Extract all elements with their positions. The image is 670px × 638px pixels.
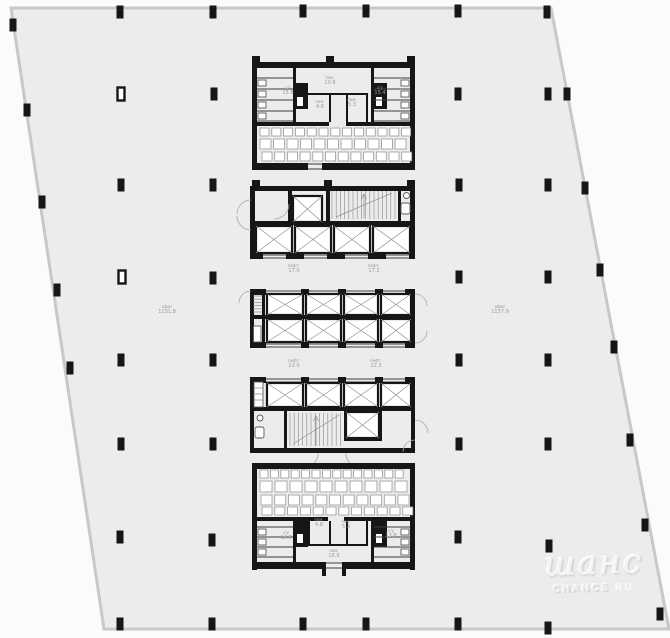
elevator-shaft [344,294,378,315]
column-marker [118,438,125,451]
column-marker [67,362,74,375]
column-marker [118,354,125,367]
column-marker [627,434,634,447]
column-marker [545,88,552,101]
column-marker [209,534,216,547]
furniture-item [402,128,411,136]
furniture-item [274,139,285,149]
room-area-label: лифт.17.0 [288,263,300,274]
duct-shaft [254,382,263,407]
room-area-label: пом.10.8 [324,75,335,86]
furniture-item [313,507,323,515]
furniture-item [390,128,399,136]
column-marker [119,271,126,284]
elevator-shaft [381,319,411,342]
furniture-item [380,481,392,492]
furniture-item [275,507,285,515]
column-marker [545,354,552,367]
furniture-item [328,139,339,149]
furniture-item [364,507,374,515]
column-marker [456,438,463,451]
furniture-item [287,152,297,161]
elevator-shaft [346,412,379,438]
watermark-brand: шанс [535,546,652,580]
furniture-item [384,495,395,505]
furniture-item [395,481,407,492]
column-marker [545,622,552,635]
elevator-shaft [306,319,341,342]
furniture-item [312,470,320,478]
furniture-item [307,128,316,136]
column-marker [39,196,46,209]
elevator-shaft [267,294,303,315]
furniture-item [281,470,289,478]
furniture-item [343,470,351,478]
elevator-shaft [344,319,378,342]
furniture-item [320,481,332,492]
furniture-item [357,495,368,505]
watermark-tld-label: RU [613,582,637,594]
column-marker [118,179,125,192]
furniture-item [354,470,362,478]
furniture-item [364,152,374,161]
column-marker [456,271,463,284]
furniture-item [330,495,341,505]
column-marker [545,438,552,451]
furniture-item [339,507,349,515]
furniture-item [300,152,310,161]
column-marker [455,5,462,18]
furniture-item [295,128,304,136]
elevator-shaft [381,383,411,407]
column-marker [117,618,124,631]
furniture-item [398,495,409,505]
furniture-item [354,128,363,136]
column-marker [455,618,462,631]
column-marker [657,608,664,621]
column-marker [455,531,462,544]
furniture-item [313,152,323,161]
room-area-label: лифт.22.3 [370,358,382,369]
furniture-item [302,495,313,505]
column-marker [10,19,17,32]
elevator-shaft [306,294,341,315]
column-marker [209,618,216,631]
furniture-item [382,139,393,149]
elevator-shaft [381,294,411,315]
furniture-item [350,481,362,492]
furniture-item [355,139,366,149]
elevator-shaft [373,226,410,253]
furniture-item [275,152,285,161]
furniture-item [260,139,271,149]
watermark-site-label: CHANCE [553,582,611,595]
column-marker [545,179,552,192]
furniture-item [343,495,354,505]
room-area-label: пом.5.3 [341,519,350,530]
furniture-item [314,139,325,149]
elevator-shaft [267,319,303,342]
furniture-item [272,128,281,136]
furniture-item [403,507,413,515]
furniture-item [326,152,336,161]
furniture-item [260,470,268,478]
column-marker [597,264,604,277]
room-area-label: лифт.22.0 [288,358,300,369]
furniture-item [402,152,412,161]
furniture-item [395,139,406,149]
elevator-shaft [295,226,331,253]
column-marker [363,5,370,18]
room-area-label: пом.16.9 [328,548,339,559]
furniture-item [300,507,310,515]
furniture-item [290,481,302,492]
column-marker [210,354,217,367]
furniture-item [385,470,393,478]
furniture-item [262,152,272,161]
column-marker [363,618,370,631]
column-marker [54,284,61,297]
furniture-item [262,507,272,515]
furniture-item [376,152,386,161]
furniture-item [284,128,293,136]
furniture-item [352,507,362,515]
column-marker [117,531,124,544]
furniture-item [288,495,299,505]
floor-plan-drawing: пом.10.8с/у15.8с/у15.4пом.4.8пом.5.3лифт… [0,0,670,638]
watermark: шанс CHANCERU [535,546,653,598]
furniture-item [301,139,312,149]
furniture-item [335,481,347,492]
room-area-label: пом.5.3 [347,97,356,108]
furniture-item [322,470,330,478]
column-marker [611,341,618,354]
elevator-shaft [256,226,292,253]
column-marker [210,6,217,19]
column-marker [545,271,552,284]
furniture-item [341,139,352,149]
furniture-item [288,507,298,515]
elevator-shaft [267,383,303,407]
column-marker [300,5,307,18]
furniture-item [378,128,387,136]
furniture-item [395,470,403,478]
elevator-shaft [334,226,370,253]
furniture-item [365,481,377,492]
furniture-item [260,481,272,492]
furniture-item [275,495,286,505]
room-area-label: пом.4.8 [315,99,324,110]
furniture-item [389,152,399,161]
furniture-item [316,495,327,505]
column-marker [210,272,217,285]
furniture-item [371,495,382,505]
furniture-item [291,470,299,478]
furniture-item [275,481,287,492]
furniture-item [338,152,348,161]
column-marker [117,6,124,19]
furniture-item [364,470,372,478]
furniture-item [302,470,310,478]
column-marker [210,179,217,192]
furniture-item [368,139,379,149]
column-marker [544,6,551,19]
furniture-item [331,128,340,136]
column-marker [456,354,463,367]
furniture-item [261,495,272,505]
furniture-item [377,507,387,515]
furniture-item [351,152,361,161]
column-marker [118,88,125,101]
furniture-item [260,128,269,136]
elevator-shaft [344,383,378,407]
furniture-item [319,128,328,136]
column-marker [642,519,649,532]
room-area-label: пом.4.8 [314,517,323,528]
column-marker [211,88,218,101]
furniture-item [343,128,352,136]
column-marker [582,182,589,195]
furniture-item [333,470,341,478]
furniture-item [326,507,336,515]
floor-plan-page: пом.10.8с/у15.8с/у15.4пом.4.8пом.5.3лифт… [0,0,670,638]
furniture-item [390,507,400,515]
room-area-label: лифт.17.2 [368,263,380,274]
column-marker [24,104,31,117]
column-marker [300,618,307,631]
column-marker [455,88,462,101]
furniture-item [287,139,298,149]
furniture-item [305,481,317,492]
furniture-item [366,128,375,136]
elevator-shaft [293,196,322,222]
elevator-shaft [306,383,341,407]
furniture-item [374,470,382,478]
column-marker [564,88,571,101]
column-marker [210,438,217,451]
furniture-item [270,470,278,478]
column-marker [456,179,463,192]
